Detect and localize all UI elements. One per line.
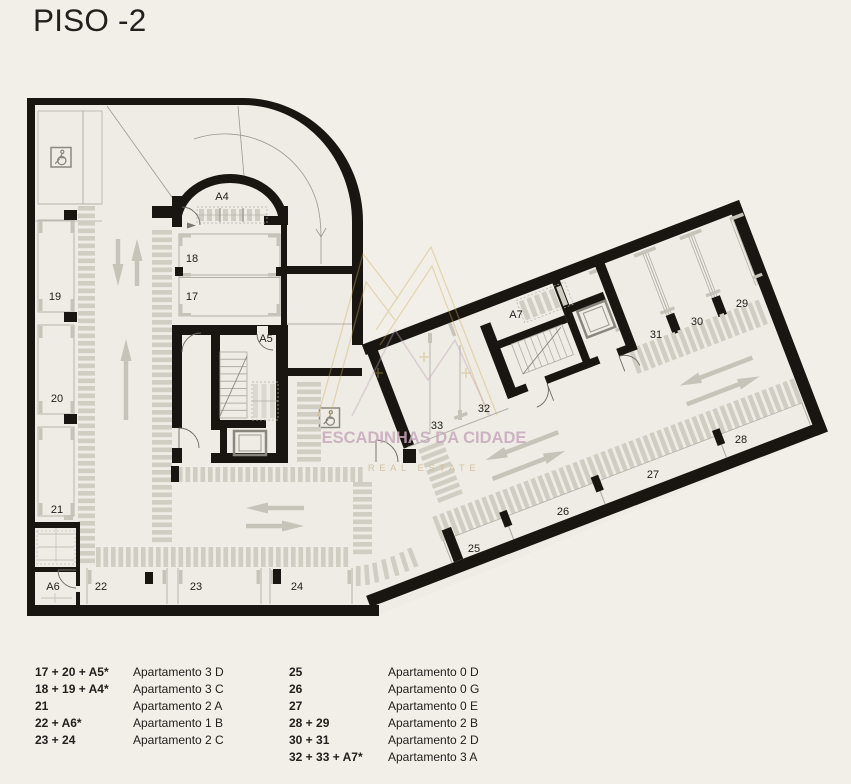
svg-text:32 + 33 + A7*: 32 + 33 + A7* [289,750,363,764]
svg-text:A7: A7 [509,309,522,321]
svg-text:25: 25 [468,543,480,555]
svg-text:26: 26 [289,682,303,696]
svg-text:29: 29 [736,298,748,310]
svg-text:A4: A4 [215,191,228,203]
svg-text:Apartamento 2 A: Apartamento 2 A [133,699,222,713]
svg-text:32: 32 [478,403,490,415]
svg-text:22: 22 [95,581,107,593]
svg-text:30: 30 [691,316,703,328]
svg-text:24: 24 [291,581,303,593]
svg-text:Apartamento 2 C: Apartamento 2 C [133,733,224,747]
svg-text:A6: A6 [46,581,59,593]
svg-text:17: 17 [186,291,198,303]
svg-text:23: 23 [190,581,202,593]
svg-text:Apartamento 2 D: Apartamento 2 D [388,733,479,747]
svg-text:25: 25 [289,665,303,679]
svg-text:Apartamento 2 B: Apartamento 2 B [388,716,478,730]
svg-text:17 + 20 + A5*: 17 + 20 + A5* [35,665,109,679]
svg-text:19: 19 [49,291,61,303]
svg-text:21: 21 [35,699,49,713]
svg-text:26: 26 [557,506,569,518]
svg-text:20: 20 [51,393,63,405]
svg-text:23 + 24: 23 + 24 [35,733,76,747]
svg-text:33: 33 [431,420,443,432]
svg-text:27: 27 [289,699,303,713]
svg-text:Apartamento 3 D: Apartamento 3 D [133,665,224,679]
svg-text:ESCADINHAS DA CIDADE: ESCADINHAS DA CIDADE [322,429,527,447]
svg-text:Apartamento 0 G: Apartamento 0 G [388,682,479,696]
svg-text:Apartamento 0 D: Apartamento 0 D [388,665,479,679]
svg-text:27: 27 [647,469,659,481]
svg-text:28: 28 [735,434,747,446]
svg-text:31: 31 [650,329,662,341]
svg-text:28 + 29: 28 + 29 [289,716,330,730]
svg-text:30 + 31: 30 + 31 [289,733,330,747]
svg-text:18 + 19 + A4*: 18 + 19 + A4* [35,682,109,696]
svg-text:Apartamento 3 A: Apartamento 3 A [388,750,477,764]
svg-text:Apartamento 3 C: Apartamento 3 C [133,682,224,696]
svg-text:18: 18 [186,253,198,265]
svg-text:21: 21 [51,504,63,516]
svg-text:22 + A6*: 22 + A6* [35,716,82,730]
svg-text:Apartamento 1 B: Apartamento 1 B [133,716,223,730]
svg-text:A5: A5 [259,333,272,345]
svg-text:PISO -2: PISO -2 [33,2,146,38]
svg-text:REAL ESTATE: REAL ESTATE [368,463,480,474]
svg-text:Apartamento 0 E: Apartamento 0 E [388,699,478,713]
